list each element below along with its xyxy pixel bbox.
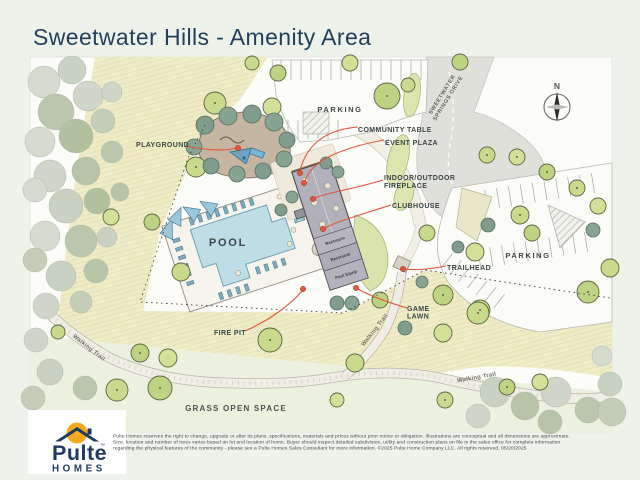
- logo-wordmark-sub: HOMES: [52, 464, 106, 475]
- label-event-plaza: EVENT PLAZA: [385, 140, 438, 147]
- logo-wordmark: Pulte: [52, 441, 107, 465]
- logo-chimney-icon: [88, 429, 92, 435]
- site-plan-canvas: Sweetwater Hills - Amenity Area: [0, 0, 640, 480]
- label-clubhouse: CLUBHOUSE: [392, 203, 440, 210]
- page-title: Sweetwater Hills - Amenity Area: [33, 24, 371, 50]
- label-game-lawn-line2: LAWN: [407, 314, 429, 321]
- logo-trademark: ™: [100, 443, 105, 449]
- label-parking-right: PARKING: [505, 251, 550, 260]
- label-pool: POOL: [209, 237, 247, 249]
- label-fireplace-line1: INDOOR/OUTDOOR: [384, 175, 455, 182]
- disclaimer-line-2: Size, location and number of trees varie…: [113, 440, 560, 446]
- label-fire-pit: FIRE PIT: [214, 330, 246, 337]
- disclaimer-line-1: Pulte Homes reserves the right to change…: [113, 434, 570, 440]
- label-community-table: COMMUNITY TABLE: [358, 127, 432, 134]
- label-parking-top: PARKING: [317, 105, 362, 114]
- disclaimer-line-3: regarding the physical features of the c…: [113, 445, 527, 452]
- label-playground: PLAYGROUND: [136, 142, 189, 149]
- label-fireplace-line2: FIREPLACE: [384, 183, 427, 190]
- compass-north-label: N: [554, 81, 560, 91]
- site-map: Restroom Restroom Pool Equip: [21, 54, 626, 434]
- legal-disclaimer: Pulte Homes reserves the right to change…: [113, 434, 570, 452]
- label-game-lawn-line1: GAME: [407, 306, 430, 313]
- label-trailhead: TRAILHEAD: [447, 265, 491, 272]
- label-grass-open-space: GRASS OPEN SPACE: [185, 404, 287, 413]
